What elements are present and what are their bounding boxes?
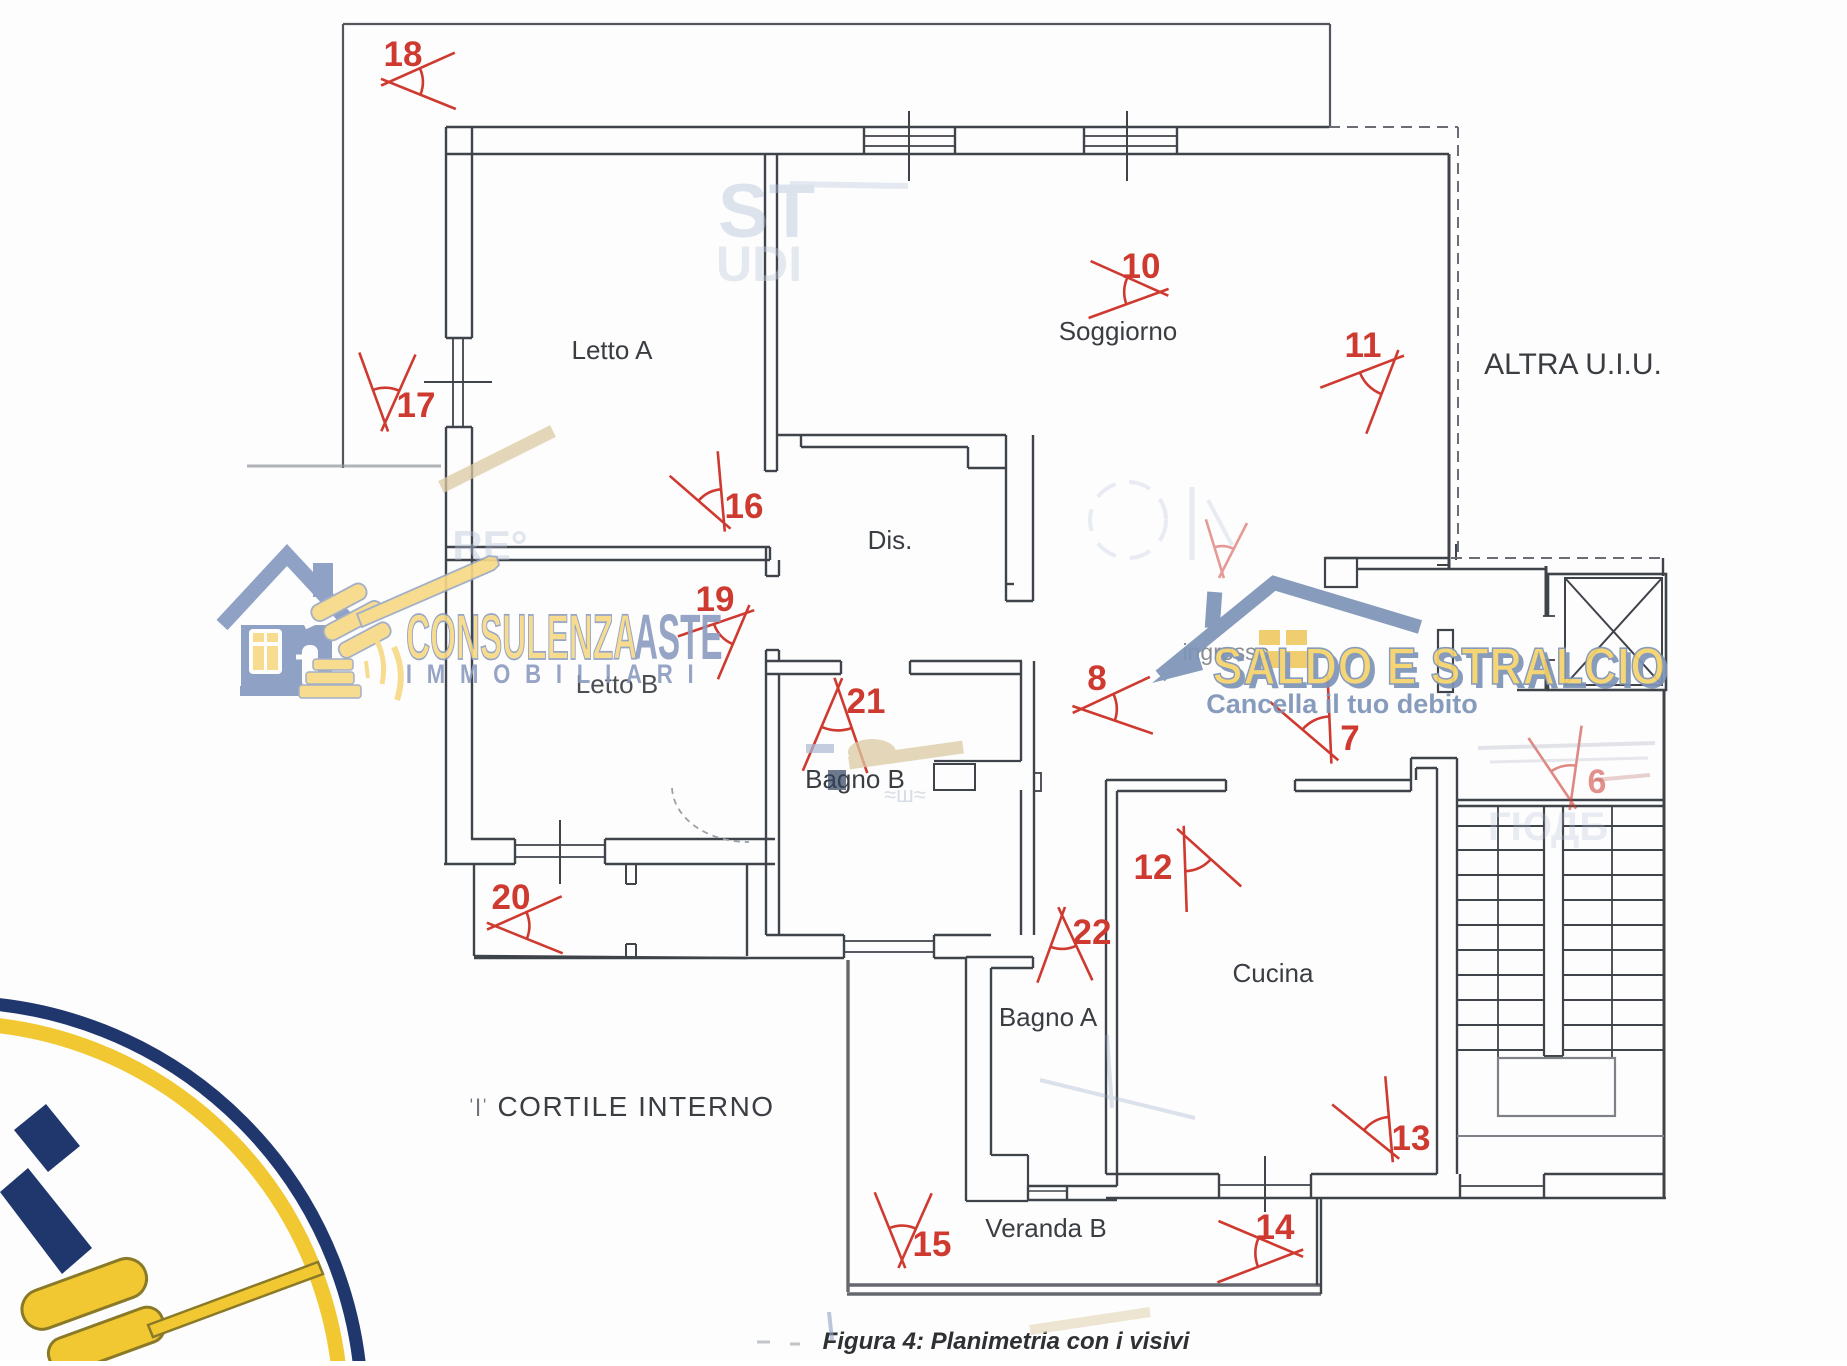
svg-text:ГЮДБ: ГЮДБ <box>1488 805 1608 849</box>
svg-text:≈ш≈: ≈ш≈ <box>884 782 926 807</box>
svg-text:7: 7 <box>1340 719 1359 758</box>
svg-text:Bagno A: Bagno A <box>999 1002 1098 1032</box>
svg-text:SALDO E STRALCIO: SALDO E STRALCIO <box>1213 638 1666 696</box>
svg-text:18: 18 <box>384 35 423 74</box>
svg-text:Figura 4: Planimetria con i vi: Figura 4: Planimetria con i visivi <box>823 1328 1191 1355</box>
svg-text:20: 20 <box>492 878 531 917</box>
svg-text:Letto A: Letto A <box>572 335 654 365</box>
svg-text:6: 6 <box>1588 763 1607 801</box>
svg-text:8: 8 <box>1087 659 1106 698</box>
svg-text:10: 10 <box>1122 247 1161 286</box>
svg-text:14: 14 <box>1256 1208 1295 1247</box>
svg-text:CORTILE INTERNO: CORTILE INTERNO <box>497 1091 774 1122</box>
svg-text:Veranda B: Veranda B <box>985 1213 1106 1243</box>
svg-text:ˈlˈ: ˈlˈ <box>467 1095 488 1122</box>
svg-text:13: 13 <box>1392 1119 1431 1158</box>
svg-text:Cucina: Cucina <box>1233 958 1314 988</box>
svg-text:21: 21 <box>847 682 886 721</box>
svg-text:16: 16 <box>725 487 764 526</box>
svg-text:IMMOBILIARI: IMMOBILIARI <box>406 660 708 690</box>
svg-text:UDI: UDI <box>716 236 802 292</box>
svg-text:12: 12 <box>1134 848 1173 887</box>
svg-text:15: 15 <box>913 1225 952 1264</box>
svg-text:ALTRA U.I.U.: ALTRA U.I.U. <box>1484 348 1662 381</box>
svg-text:Cancella il tuo debito: Cancella il tuo debito <box>1206 689 1478 719</box>
svg-text:Soggiorno: Soggiorno <box>1059 316 1178 346</box>
svg-text:Dis.: Dis. <box>868 525 913 555</box>
svg-text:11: 11 <box>1345 326 1382 365</box>
svg-text:17: 17 <box>397 386 436 425</box>
svg-text:22: 22 <box>1073 913 1112 952</box>
